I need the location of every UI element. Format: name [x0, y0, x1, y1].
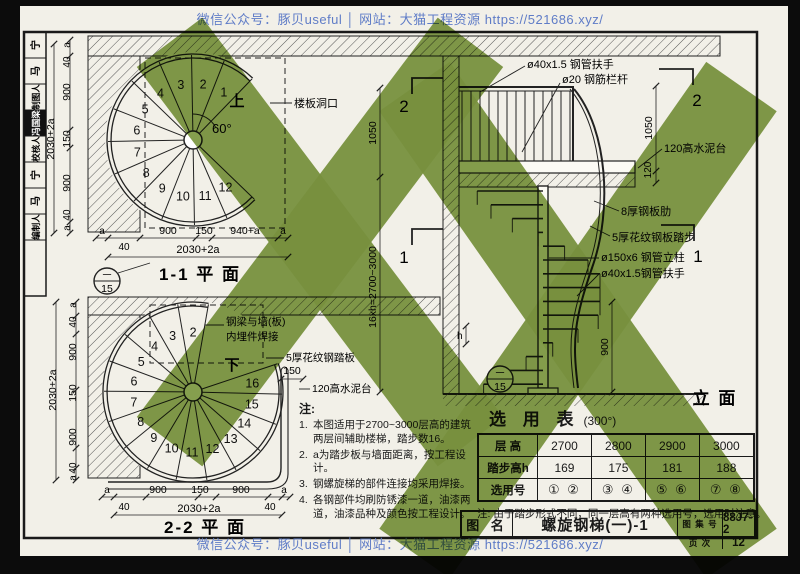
step-number: 8	[137, 415, 144, 429]
table-cell: 2700	[538, 434, 592, 457]
leader-line	[594, 201, 619, 211]
tread-label: 5厚花纹钢踏板	[286, 351, 355, 364]
dim-label: 900	[61, 174, 73, 192]
dim-label: 40	[68, 462, 79, 474]
step-number: 2	[200, 77, 207, 91]
step-number: 7	[130, 395, 137, 409]
sidebar-cell-label: 宁	[29, 40, 42, 50]
dim-label: 40	[264, 502, 276, 513]
step-number: 13	[224, 432, 238, 446]
detail-mark-circle: 一 15	[94, 263, 150, 295]
step-number: 9	[150, 431, 157, 445]
step-number: 4	[151, 339, 158, 353]
detail-page: 15	[494, 381, 506, 393]
leader-line	[522, 83, 560, 152]
detail-page: 15	[101, 283, 113, 295]
dim-label: a	[62, 225, 73, 231]
sidebar-cell-label: 马	[30, 66, 42, 76]
drawing-name: 螺旋钢梯(一)-1	[513, 512, 678, 536]
row-header: 踏步高h	[478, 457, 538, 479]
dim-label: 900	[159, 225, 177, 237]
center-column-hub	[184, 383, 202, 401]
table-cell: 175	[591, 457, 645, 479]
step-number: 3	[169, 329, 176, 343]
note-number: 3.	[299, 478, 313, 492]
step-number: 6	[133, 123, 140, 137]
table-row: 层 高 2700 2800 2900 3000	[478, 434, 754, 457]
table-cell: 169	[538, 457, 592, 479]
selection-table-block: 选 用 表 (300°) 层 高 2700 2800 2900 3000 踏步高…	[477, 405, 757, 521]
note-item: 4. 各钢部件均刷防锈漆一道，油漆两道，油漆品种及颜色按工程设计。	[299, 494, 471, 522]
section-mark-2-right: 2	[659, 69, 702, 110]
step-number: 15	[245, 397, 259, 411]
center-column-hub	[184, 131, 202, 149]
table-cell: ⑤ ⑥	[645, 479, 699, 502]
table-cell: 2800	[591, 434, 645, 457]
weld-label-line1: 钢梁与墙(板)	[226, 315, 286, 328]
elevation-view: 1050 16xh=2700~3000 1050 120 900 h ø40x1…	[367, 57, 737, 408]
railing-label: ø20 钢筋栏杆	[562, 72, 628, 86]
dim-total-label: 2030+2a	[47, 369, 59, 410]
selection-table-angle: (300°)	[583, 414, 616, 428]
general-notes: 注: 1. 本图适用于2700~3000层高的建筑两层间辅助楼梯，踏步数16。 …	[299, 402, 471, 524]
step-number: 9	[159, 181, 166, 195]
rib-label: 8厚钢板肋	[621, 204, 671, 218]
table-cell: ③ ④	[591, 479, 645, 502]
handrail-label: ø40x1.5钢管扶手	[601, 266, 685, 280]
step-number: 8	[143, 166, 150, 180]
note-text: 钢螺旋梯的部件连接均采用焊接。	[313, 478, 471, 492]
detail-number: 一	[102, 270, 111, 280]
scanned-drawing-sheet: { "banner": { "top": "微信公众号：豚贝useful │ 网…	[0, 0, 800, 574]
selection-table: 层 高 2700 2800 2900 3000 踏步高h 169 175 181…	[477, 433, 755, 502]
dim-label: 40	[118, 502, 130, 513]
dim-label: 940+a	[230, 225, 260, 237]
step-number: 12	[206, 442, 220, 456]
section-mark-1-left: 1	[399, 229, 443, 267]
note-text: 各钢部件均刷防锈漆一道，油漆两道，油漆品种及颜色按工程设计。	[313, 494, 471, 522]
atlas-number: 88J7-2	[723, 512, 754, 536]
step-number: 16	[245, 377, 259, 391]
step-number: 7	[134, 146, 141, 160]
down-label: 下	[224, 357, 239, 374]
table-cell: 2900	[645, 434, 699, 457]
step-number: 2	[190, 326, 197, 340]
weld-label-line2: 内埋件焊接	[226, 330, 279, 343]
note-text: 本图适用于2700~3000层高的建筑两层间辅助楼梯，踏步数16。	[313, 419, 471, 447]
dim-label: 40	[62, 209, 73, 221]
table-cell: 188	[699, 457, 754, 479]
note-item: 2. a为踏步板与墙面距离，按工程设计。	[299, 449, 471, 477]
column-label: ø150x6 钢管立柱	[601, 250, 685, 264]
note-item: 3. 钢螺旋梯的部件连接均采用焊接。	[299, 478, 471, 492]
dim-label: 900	[232, 484, 250, 496]
step-number: 5	[142, 103, 149, 117]
step-number: 10	[176, 190, 190, 204]
table-cell: 3000	[699, 434, 754, 457]
bottom-watermark-banner: 微信公众号：豚贝useful │ 网站：大猫工程资源 https://52168…	[0, 534, 800, 553]
dim-label: 120	[643, 161, 654, 178]
sidebar: 宁 马 制图人 冯国梁 校核人 宁 马 编制人	[24, 32, 46, 296]
step-number: 14	[237, 417, 251, 431]
section-number: 2	[399, 97, 408, 116]
note-number: 2.	[299, 449, 313, 477]
atlas-number-label: 图 集 号	[678, 512, 723, 536]
step-number: 11	[186, 446, 199, 460]
notes-heading: 注:	[299, 402, 471, 418]
step-number: 12	[219, 180, 233, 194]
dim-label: 900	[149, 484, 167, 496]
sidebar-cell-label: 马	[30, 196, 42, 206]
dim-label: 1050	[367, 121, 379, 145]
note-text: a为踏步板与墙面距离，按工程设计。	[313, 449, 471, 477]
dim-label: a	[99, 226, 105, 237]
step-number: 6	[131, 375, 138, 389]
dim-total-label: 2030+2a	[176, 244, 220, 256]
curb-label: 120高水泥台	[312, 382, 372, 395]
tread-edge-line	[104, 391, 184, 392]
dim-total-label: 2030+2a	[177, 503, 221, 515]
section-number: 1	[399, 248, 408, 267]
sidebar-cell-label: 宁	[29, 170, 42, 180]
dim-label: 40	[118, 242, 130, 253]
sidebar-cell-label: 校核人	[31, 136, 41, 162]
table-cell: 181	[645, 457, 699, 479]
step-number: 11	[199, 189, 212, 203]
up-label: 上	[229, 93, 244, 110]
tread-label: 5厚花纹钢板踏步	[612, 230, 695, 244]
angle-label: 60°	[212, 121, 232, 136]
dim-label: a	[68, 475, 79, 481]
detail-mark-circle: 一 15	[487, 366, 513, 393]
note-number: 1.	[299, 419, 313, 447]
dim-label: 150	[283, 365, 301, 377]
plan-1-1-title: 1-1 平 面	[159, 265, 241, 284]
sidebar-cell-label: 冯国梁	[31, 110, 41, 136]
table-row: 踏步高h 169 175 181 188	[478, 457, 754, 479]
dim-label: 900	[67, 343, 79, 361]
table-row: 选用号 ① ② ③ ④ ⑤ ⑥ ⑦ ⑧	[478, 479, 754, 502]
row-header: 层 高	[478, 434, 538, 457]
dim-label: 900	[61, 83, 73, 101]
step-number: 3	[177, 78, 184, 92]
dim-label: 900	[67, 428, 79, 446]
step-number: 10	[165, 442, 179, 456]
leader-line	[480, 66, 525, 92]
note-number: 4.	[299, 494, 313, 522]
dim-label: 900	[599, 338, 611, 356]
floor-opening-label: 楼板洞口	[294, 96, 338, 110]
step-number: 5	[138, 355, 145, 369]
section-number: 2	[692, 91, 701, 110]
table-cell: ① ②	[538, 479, 592, 502]
curb-label: 120高水泥台	[664, 141, 726, 155]
section-number: 1	[693, 247, 702, 266]
top-watermark-banner: 微信公众号：豚贝useful │ 网站：大猫工程资源 https://52168…	[0, 9, 800, 28]
handrail-top-label: ø40x1.5 钢管扶手	[527, 57, 614, 71]
sidebar-cell-label: 制图人	[31, 84, 41, 110]
dim-label: 150	[195, 225, 213, 237]
sidebar-cell-label: 编制人	[31, 214, 41, 240]
table-cell: ⑦ ⑧	[699, 479, 754, 502]
dim-label: h	[457, 331, 463, 342]
step-number: 4	[157, 87, 164, 101]
selection-table-title: 选 用 表	[489, 405, 579, 430]
dim-label: 16xh=2700~3000	[367, 246, 379, 328]
dim-label: 1050	[643, 116, 655, 140]
section-mark-2-left: 2	[399, 78, 443, 116]
note-item: 1. 本图适用于2700~3000层高的建筑两层间辅助楼梯，踏步数16。	[299, 419, 471, 447]
dim-total-label: 2030+2a	[45, 118, 57, 159]
drawing-name-label: 图 名	[462, 512, 513, 536]
step-number: 1	[220, 86, 227, 100]
detail-number: 一	[495, 368, 504, 378]
row-header: 选用号	[478, 479, 538, 502]
